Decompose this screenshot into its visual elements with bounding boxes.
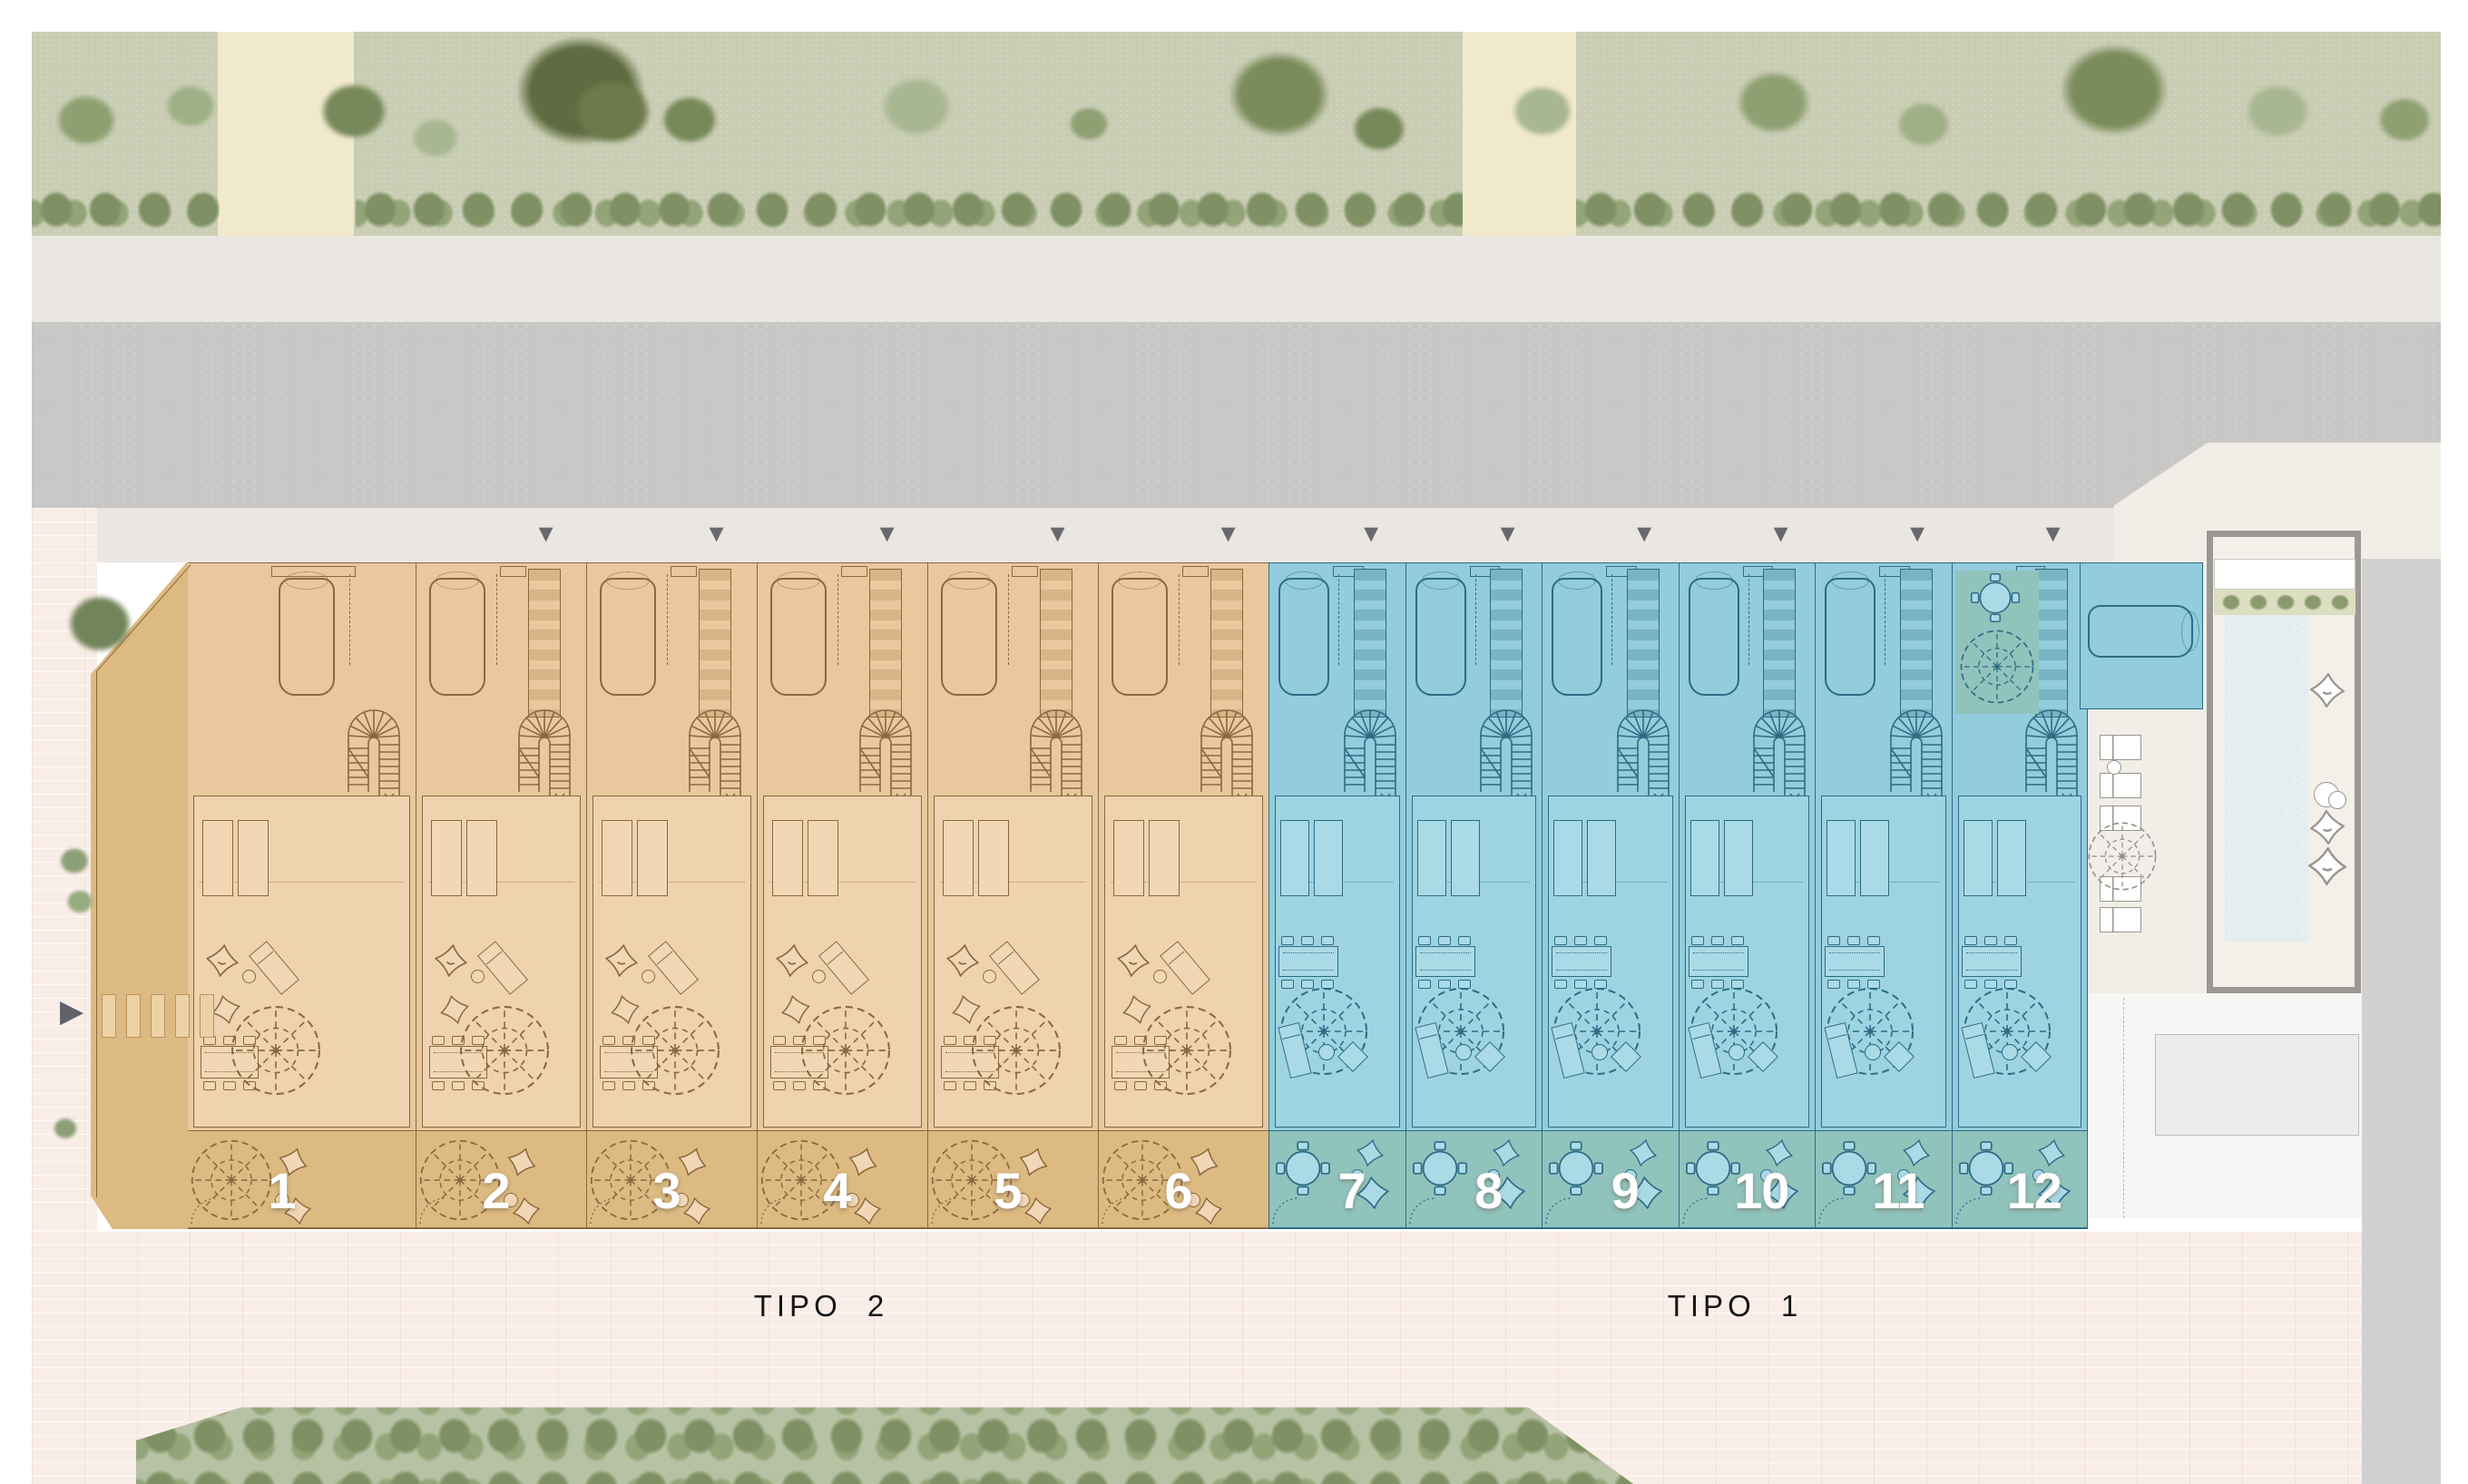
access-marker-icon: ▼ [1495,522,1520,546]
sun-lounger-icon [1551,1022,1584,1079]
side-table-icon [1729,1044,1745,1060]
unit-9-number: 9 [1611,1166,1639,1216]
chair-icon [1438,936,1451,945]
parking-car-icon [1825,578,1875,696]
access-marker-icon: ▼ [1359,522,1384,546]
parking-car-icon [1415,578,1466,696]
unit-garden: 1 [188,1130,416,1227]
access-marker-icon: ▼ [704,522,729,546]
parking-divider [1475,574,1476,665]
sun-lounger-icon [1688,1022,1721,1079]
dining-table-icon [1552,946,1611,977]
parasol-icon [799,1004,892,1097]
gate-arc [1409,1197,1436,1225]
parasol-icon [458,1004,551,1097]
sunbeds [772,820,843,901]
sunbed-icon [1280,820,1309,896]
cushion-icon [433,942,470,980]
garden-table-icon [1412,1140,1468,1196]
units-container: 1 ▼ [0,0,2468,1484]
chair-icon [773,1081,786,1090]
side-table-icon [1318,1044,1335,1060]
sunbed-icon [1860,820,1889,896]
pedestrian-crossing [102,994,238,1038]
spiral-stair-icon [1748,696,1810,806]
spiral-stair-icon [343,696,405,806]
unit-3-number: 3 [652,1166,680,1216]
parking-car-icon [1689,578,1739,696]
tipo2-label: TIPO 2 [754,1289,889,1323]
side-table-icon [2002,1044,2018,1060]
unit-6[interactable]: ▼ [1098,562,1268,1229]
unit-10-number: 10 [1734,1166,1788,1216]
side-table-icon [471,970,485,983]
unit-8-number: 8 [1474,1166,1502,1216]
sunbeds [1964,820,2031,901]
unit-1[interactable]: 1 [188,562,416,1229]
chair-icon [432,1081,445,1090]
access-marker-icon: ▼ [1632,522,1657,546]
parasol-icon [230,1004,322,1097]
chair-icon [1847,936,1860,945]
entrance-arrow-icon: ▶ [60,996,83,1027]
parking-car-icon [770,578,827,696]
parking-car-icon [2088,605,2193,658]
chair-icon [1114,1081,1127,1090]
sunbed-icon [1964,820,1993,896]
garden-table-icon [1275,1140,1331,1196]
gate-arc [419,1197,446,1225]
sunbed-icon [1997,820,2026,896]
dining-table-icon [1278,946,1338,977]
unit-garden: 11 [1816,1130,1952,1227]
canopy [1182,566,1209,577]
access-marker-icon: ▼ [875,522,899,546]
cushion-icon [1611,1041,1641,1072]
canopy [500,566,526,577]
chair-icon [944,1081,956,1090]
gate-arc [1272,1197,1299,1225]
chair-icon [944,1036,956,1045]
dining-table-icon [1825,946,1885,977]
chair-icon [1867,936,1880,945]
crossing-bar [175,994,190,1038]
sun-lounger-icon [1278,1022,1311,1079]
parking-divider [1179,574,1180,665]
parking-divider [667,574,668,665]
parking-divider [1885,574,1885,665]
sunbed-icon [466,820,497,896]
sunbed-icon [943,820,974,896]
sunbed-icon [238,820,269,896]
canopy [841,566,867,577]
unit-2-number: 2 [482,1166,509,1216]
chair-icon [1114,1036,1127,1045]
lounge-group [1692,1022,1792,1088]
side-table-icon [1591,1044,1608,1060]
dining-set [1962,937,2022,988]
access-marker-icon: ▼ [1768,522,1793,546]
gate-arc [1682,1197,1709,1225]
canopy [671,566,697,577]
site-plan: 1 ▼ [0,0,2468,1484]
spiral-stair-icon [1885,696,1947,806]
unit-6-number: 6 [1164,1166,1191,1216]
gate-arc [931,1197,958,1225]
sunbed-icon [1724,820,1753,896]
unit-5-number: 5 [994,1166,1021,1216]
parking-car-icon [600,578,656,696]
gate-arc [191,1197,218,1225]
sunbed-icon [772,820,803,896]
cushion-icon [1022,1193,1054,1230]
cushion-icon [681,1193,713,1230]
sunbeds [1553,820,1621,901]
tipo1-label: TIPO 1 [1668,1289,1803,1323]
cushion-icon [204,942,241,980]
sunbed-icon [431,820,462,896]
chair-icon [1594,936,1607,945]
side-table-icon [1455,1044,1472,1060]
spiral-stair-icon [1475,696,1537,806]
chair-icon [1731,936,1744,945]
sun-lounger-icon [1415,1022,1448,1079]
parasol-icon [1959,629,2035,705]
parking-divider [1611,574,1612,665]
side-table-icon [1153,970,1167,983]
chair-icon [602,1081,615,1090]
lounge-group [1282,1022,1382,1088]
chair-icon [1574,936,1587,945]
unit-garden: 5 [928,1130,1098,1227]
sunbed-icon [1113,820,1144,896]
side-table-icon [1865,1044,1881,1060]
parking-divider [837,574,838,665]
access-marker-icon: ▼ [2041,522,2065,546]
gate-arc [1818,1197,1846,1225]
unit-garden: 10 [1680,1130,1816,1227]
spiral-stair-icon [684,696,746,806]
gate-arc [590,1197,617,1225]
parking-car-icon [1112,578,1168,696]
cushion-icon [774,942,811,980]
access-marker-icon: ▼ [1045,522,1070,546]
pool-side-table-icon [2328,791,2346,809]
tree-icon [56,584,143,662]
unit-12-number: 12 [2007,1166,2062,1216]
tree-icon [54,843,94,879]
sunbed-icon [978,820,1009,896]
dining-set [1689,937,1748,988]
unit-garden: 6 [1099,1130,1268,1227]
pool-lounger-icon [2100,773,2141,798]
pool-lounger-icon [2100,907,2141,932]
unit-5[interactable]: ▼ [927,562,1098,1229]
chair-icon [1964,936,1977,945]
parking-divider [349,574,350,665]
unit-8[interactable]: ▼ [1405,562,1542,1229]
dining-set [1825,937,1885,988]
cushion-icon [945,942,982,980]
unit-7-number: 7 [1338,1166,1366,1216]
sunbeds [202,820,273,901]
parking-divider [1748,574,1749,665]
parking-car-icon [1552,578,1602,696]
sunbed-icon [602,820,632,896]
unit-garden: 8 [1406,1130,1542,1227]
chair-icon [1321,936,1334,945]
spiral-stair-icon [855,696,916,806]
chair-icon [1301,936,1314,945]
garden-table-icon [1821,1140,1877,1196]
crossing-bar [200,994,214,1038]
parasol-icon [970,1004,1063,1097]
unit-4-number: 4 [823,1166,850,1216]
dining-set [1278,937,1338,988]
sunbeds [431,820,502,901]
cushion-icon [1192,1193,1225,1230]
sunbeds [1280,820,1347,901]
sunbeds [1827,820,1894,901]
chair-icon [1711,936,1724,945]
lounge-group [1965,1022,2065,1088]
dining-table-icon [1689,946,1748,977]
sunbeds [943,820,1014,901]
sunbed-icon [1827,820,1856,896]
crossing-bar [151,994,165,1038]
pool-cushion-icon [2307,846,2346,885]
access-marker-icon: ▼ [1216,522,1240,546]
parasol-icon [629,1004,721,1097]
cushion-icon [851,1193,884,1230]
dining-table-icon [1962,946,2022,977]
sunbed-icon [1149,820,1180,896]
sunbeds [602,820,672,901]
cushion-icon [1474,1041,1505,1072]
sunbed-icon [202,820,233,896]
unit-4[interactable]: ▼ [757,562,927,1229]
unit-7[interactable]: ▼ [1268,562,1405,1229]
parking-car-icon [279,578,335,696]
chair-icon [1458,936,1471,945]
boundary-line [96,671,97,1197]
tree-icon [62,885,98,918]
garden-table-icon [1970,572,2021,623]
side-table-icon [812,970,826,983]
parking-car-icon [429,578,485,696]
unit-garden: 3 [587,1130,757,1227]
pool-lounger-icon [2100,735,2141,760]
chair-icon [432,1036,445,1045]
tree-icon [49,1114,82,1143]
cushion-icon [603,942,641,980]
spiral-stair-icon [514,696,575,806]
unit-garden: 9 [1542,1130,1679,1227]
chair-icon [1281,936,1294,945]
unit-garden: 12 [1953,1130,2088,1227]
sunbed-icon [1314,820,1343,896]
lounge-group [1419,1022,1519,1088]
unit-3[interactable]: ▼ [586,562,757,1229]
chair-icon [773,1036,786,1045]
pool-cushion-icon [2309,672,2346,708]
sun-lounger-icon [1961,1022,1994,1079]
garden-table-icon [1958,1140,2014,1196]
unit-9[interactable]: ▼ [1542,562,1679,1229]
lounge-group [1828,1022,1928,1088]
unit-garden: 7 [1269,1130,1405,1227]
spiral-stair-icon [1025,696,1087,806]
pool-side-table-icon [2107,760,2121,775]
unit-12-wing [2080,562,2203,709]
lounge-group [1555,1022,1655,1088]
unit-garden: 2 [416,1130,586,1227]
chair-icon [1827,936,1840,945]
sunbed-icon [1417,820,1446,896]
parking-car-icon [1278,578,1329,696]
unit-12[interactable]: ▼ [1952,562,2089,1229]
cushion-icon [2021,1041,2052,1072]
side-table-icon [983,970,996,983]
access-marker-icon: ▼ [534,522,558,546]
chair-icon [2004,936,2017,945]
unit-11[interactable]: ▼ [1815,562,1952,1229]
sunbed-icon [1451,820,1480,896]
gate-arc [1102,1197,1129,1225]
cushion-icon [510,1193,543,1230]
chair-icon [203,1081,216,1090]
sunbed-icon [1690,820,1719,896]
dining-set [1415,937,1475,988]
chair-icon [1691,936,1704,945]
side-table-icon [641,970,655,983]
gate-arc [1545,1197,1572,1225]
pool-parasol-icon [2087,821,2158,892]
spiral-stair-icon [1339,696,1401,806]
parking-divider [1008,574,1009,665]
cushion-icon [1748,1041,1778,1072]
sunbeds [1113,820,1184,901]
sunbed-icon [637,820,668,896]
unit-2[interactable]: ▼ [416,562,586,1229]
sunbed-icon [1553,820,1582,896]
cushion-icon [1115,942,1152,980]
unit-11-number: 11 [1872,1166,1924,1216]
chair-icon [602,1036,615,1045]
crossing-bar [102,994,116,1038]
crossing-bar [126,994,141,1038]
garden-table-icon [1548,1140,1604,1196]
access-marker-icon: ▼ [1905,522,1930,546]
sunbed-icon [808,820,838,896]
gate-arc [1955,1197,1983,1225]
parking-car-icon [941,578,997,696]
cushion-icon [1884,1041,1915,1072]
sunbeds [1417,820,1484,901]
spiral-stair-icon [1612,696,1674,806]
gate-arc [760,1197,788,1225]
parking-divider [496,574,497,665]
sunbed-icon [1587,820,1616,896]
sun-lounger-icon [1824,1022,1857,1079]
unit-1-number: 1 [268,1166,295,1216]
unit-10[interactable]: ▼ [1679,562,1816,1229]
pool-cushion-icon [2309,809,2346,846]
garden-table-icon [1685,1140,1741,1196]
unit-garden: 4 [758,1130,927,1227]
back-patio [1955,571,2039,714]
sunbeds [1690,820,1758,901]
dining-set [1552,937,1611,988]
side-table-icon [242,970,256,983]
chair-icon [1418,936,1431,945]
chair-icon [1984,936,1997,945]
canopy [1012,566,1038,577]
dining-table-icon [1415,946,1475,977]
spiral-stair-icon [1196,696,1258,806]
parking-divider [1338,574,1339,665]
cushion-icon [1337,1041,1368,1072]
chair-icon [1554,936,1567,945]
parasol-icon [1141,1004,1233,1097]
